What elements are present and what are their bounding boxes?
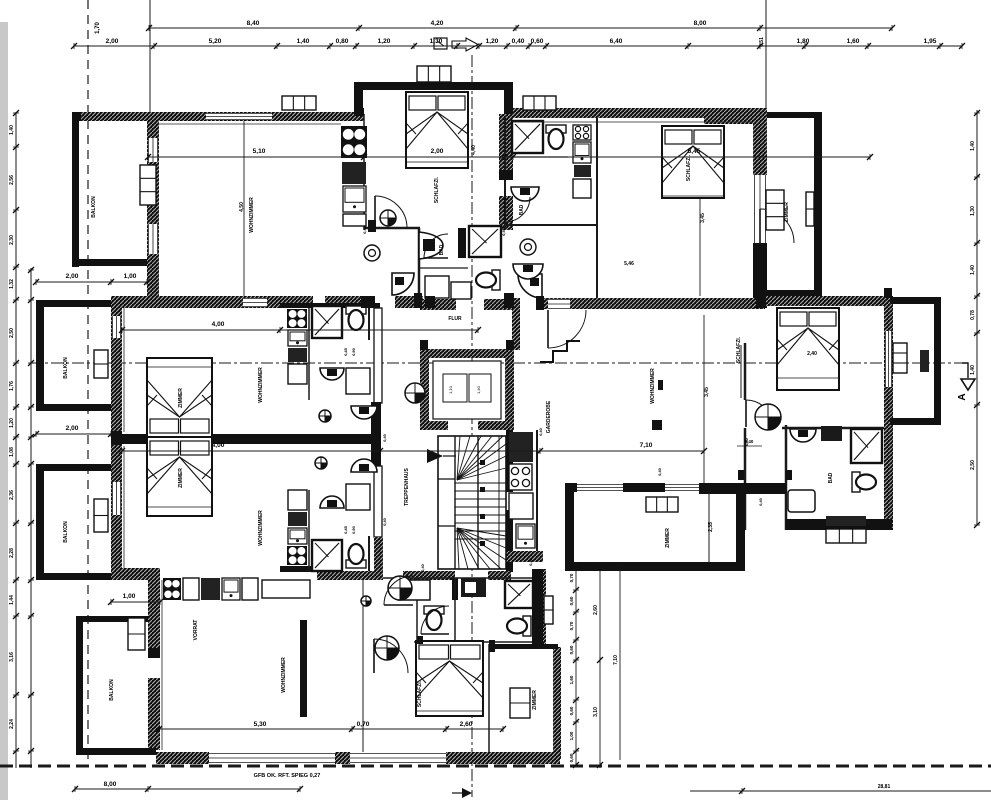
svg-text:0,90: 0,90 (351, 525, 356, 534)
svg-text:1,32: 1,32 (9, 279, 15, 289)
svg-text:GARDEROBE: GARDEROBE (546, 400, 552, 433)
svg-text:BALKON: BALKON (109, 679, 115, 701)
svg-text:0,70: 0,70 (569, 621, 574, 630)
svg-text:1,80: 1,80 (797, 38, 810, 45)
svg-text:VORRAT: VORRAT (193, 620, 199, 641)
svg-text:0,78: 0,78 (970, 310, 976, 320)
svg-text:0,40: 0,40 (383, 518, 387, 525)
svg-text:WOHNZIMMER: WOHNZIMMER (281, 657, 287, 693)
svg-text:2,60: 2,60 (593, 605, 599, 615)
svg-text:1,40: 1,40 (970, 141, 976, 151)
svg-text:SCHLAFZI.: SCHLAFZI. (736, 336, 742, 363)
svg-text:0,51: 0,51 (759, 37, 765, 47)
svg-text:1,60: 1,60 (847, 38, 860, 45)
svg-text:2,36: 2,36 (9, 490, 15, 500)
svg-text:7,10: 7,10 (613, 655, 619, 665)
svg-text:SCHLAFZI.: SCHLAFZI. (686, 154, 692, 181)
svg-text:1,40: 1,40 (476, 385, 481, 394)
svg-text:0,60: 0,60 (569, 645, 574, 654)
svg-text:0,40: 0,40 (658, 468, 662, 475)
svg-text:1,76: 1,76 (9, 381, 15, 391)
svg-text:2,00: 2,00 (106, 38, 119, 45)
svg-text:0,40: 0,40 (363, 226, 367, 233)
svg-text:0,60: 0,60 (569, 596, 574, 605)
svg-text:WOHNZIMMER: WOHNZIMMER (650, 368, 656, 404)
svg-text:5,30: 5,30 (254, 721, 267, 728)
svg-text:7,10: 7,10 (640, 442, 653, 449)
svg-text:5,10: 5,10 (253, 148, 266, 155)
svg-text:5,45: 5,45 (688, 148, 701, 155)
svg-text:2,35: 2,35 (708, 522, 714, 532)
svg-text:2,24: 2,24 (9, 719, 15, 729)
svg-text:0,40: 0,40 (529, 558, 533, 565)
svg-text:1,40: 1,40 (9, 125, 15, 135)
svg-text:GFB OK. RFT. SPIEG 0,27: GFB OK. RFT. SPIEG 0,27 (254, 773, 321, 779)
svg-text:1,30: 1,30 (430, 38, 443, 45)
svg-text:WOHNZIMMER: WOHNZIMMER (258, 367, 264, 403)
svg-text:2,60: 2,60 (460, 721, 473, 728)
svg-text:BAD: BAD (828, 472, 834, 483)
svg-text:ZIMMER: ZIMMER (178, 468, 184, 488)
svg-text:8,00: 8,00 (694, 20, 707, 27)
svg-text:WOHNZIMMER: WOHNZIMMER (258, 510, 264, 546)
svg-text:2,28: 2,28 (9, 548, 15, 558)
svg-text:0,70: 0,70 (569, 573, 574, 582)
svg-text:5,46: 5,46 (624, 261, 634, 267)
svg-text:4,40: 4,40 (471, 145, 477, 155)
svg-text:2,40: 2,40 (807, 351, 817, 357)
svg-text:1,95: 1,95 (924, 38, 937, 45)
svg-text:0,40: 0,40 (502, 228, 506, 235)
svg-text:SCHLAFZI.: SCHLAFZI. (417, 680, 423, 707)
svg-text:BAD: BAD (439, 244, 445, 255)
svg-text:2,56: 2,56 (9, 175, 15, 185)
svg-text:A: A (957, 393, 968, 400)
svg-text:2,00: 2,00 (66, 273, 79, 280)
svg-text:ZIMMER: ZIMMER (784, 202, 790, 222)
svg-text:ZIMMER: ZIMMER (532, 690, 538, 710)
svg-text:2,00: 2,00 (66, 425, 79, 432)
svg-text:4,20: 4,20 (431, 20, 444, 27)
svg-text:1,40: 1,40 (970, 265, 976, 275)
svg-text:1,00: 1,00 (124, 273, 137, 280)
svg-text:0,40: 0,40 (383, 434, 387, 441)
svg-text:FLUR: FLUR (448, 316, 462, 322)
svg-text:1,40: 1,40 (970, 365, 976, 375)
svg-text:1,00: 1,00 (123, 593, 136, 600)
svg-text:1,20: 1,20 (9, 418, 15, 428)
svg-text:28,81: 28,81 (878, 784, 891, 790)
svg-text:3,45: 3,45 (704, 387, 710, 397)
svg-text:0,40: 0,40 (512, 38, 525, 45)
svg-text:5,20: 5,20 (209, 38, 222, 45)
svg-text:2,00: 2,00 (431, 148, 444, 155)
svg-text:3,16: 3,16 (9, 652, 15, 662)
svg-text:1,08: 1,08 (9, 447, 15, 457)
svg-text:0,45: 0,45 (343, 525, 348, 534)
svg-text:BALKON: BALKON (63, 521, 69, 543)
svg-text:0,80: 0,80 (336, 38, 349, 45)
svg-text:4,00: 4,00 (212, 442, 225, 449)
svg-text:6,40: 6,40 (610, 38, 623, 45)
svg-text:ZIMMER: ZIMMER (665, 528, 671, 548)
svg-text:0,60: 0,60 (569, 753, 574, 762)
svg-text:1,44: 1,44 (9, 595, 15, 605)
svg-text:0,70: 0,70 (357, 721, 370, 728)
svg-text:2,50: 2,50 (9, 328, 15, 338)
svg-text:SCHLAFZI.: SCHLAFZI. (434, 176, 440, 203)
svg-text:2,30: 2,30 (9, 235, 15, 245)
svg-text:0,40: 0,40 (539, 428, 543, 435)
svg-text:BALKON: BALKON (91, 196, 97, 218)
svg-text:8,40: 8,40 (247, 20, 260, 27)
svg-text:0,40: 0,40 (759, 498, 763, 505)
svg-text:1,60: 1,60 (569, 675, 574, 684)
svg-text:0,40: 0,40 (745, 438, 749, 445)
svg-text:0,60: 0,60 (569, 706, 574, 715)
svg-text:0,60: 0,60 (531, 38, 544, 45)
svg-text:1,20: 1,20 (486, 38, 499, 45)
svg-text:BAD: BAD (519, 204, 525, 215)
svg-text:0,90: 0,90 (351, 347, 356, 356)
svg-text:3,45: 3,45 (700, 213, 706, 223)
svg-text:BALKON: BALKON (63, 357, 69, 379)
svg-text:1,00: 1,00 (569, 731, 574, 740)
svg-text:2,50: 2,50 (970, 460, 976, 470)
svg-text:8,00: 8,00 (104, 781, 117, 788)
svg-text:4,00: 4,00 (212, 321, 225, 328)
svg-text:4,50: 4,50 (239, 202, 245, 212)
svg-text:0,45: 0,45 (343, 347, 348, 356)
svg-text:1,10: 1,10 (448, 385, 453, 394)
svg-text:1,40: 1,40 (297, 38, 310, 45)
svg-text:1,70: 1,70 (95, 22, 101, 34)
svg-text:3,10: 3,10 (593, 707, 599, 717)
svg-text:0,40: 0,40 (421, 564, 425, 571)
svg-text:WOHNZIMMER: WOHNZIMMER (249, 197, 255, 233)
svg-text:TREPPENHAUS: TREPPENHAUS (404, 467, 410, 505)
svg-text:ZIMMER: ZIMMER (178, 388, 184, 408)
svg-text:1,20: 1,20 (378, 38, 391, 45)
svg-text:1,30: 1,30 (970, 206, 976, 216)
